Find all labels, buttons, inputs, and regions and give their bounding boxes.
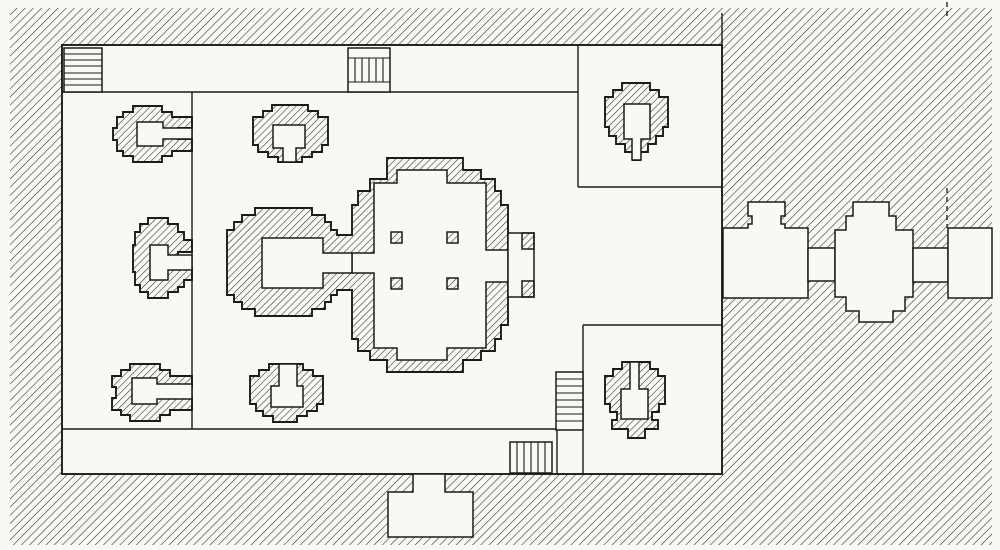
floor-plan-canvas: [0, 0, 1000, 550]
east-passage: [948, 228, 992, 298]
causeway-corridor-inner: [808, 248, 835, 281]
pillar: [447, 278, 458, 289]
pillar: [447, 232, 458, 243]
east-porch: [508, 233, 534, 297]
nw-stairs: [64, 48, 102, 92]
sanctuary-interior: [352, 170, 508, 360]
shrine-se: [605, 362, 665, 438]
pillar: [391, 278, 402, 289]
causeway-corridor-outer: [913, 248, 948, 282]
se-stairs: [556, 372, 583, 430]
pillar: [391, 232, 402, 243]
north-stairs: [348, 48, 390, 92]
floor-plan-figure: Engraved floor plan of a walled temple c…: [0, 0, 1000, 550]
south-stairs: [510, 442, 552, 473]
